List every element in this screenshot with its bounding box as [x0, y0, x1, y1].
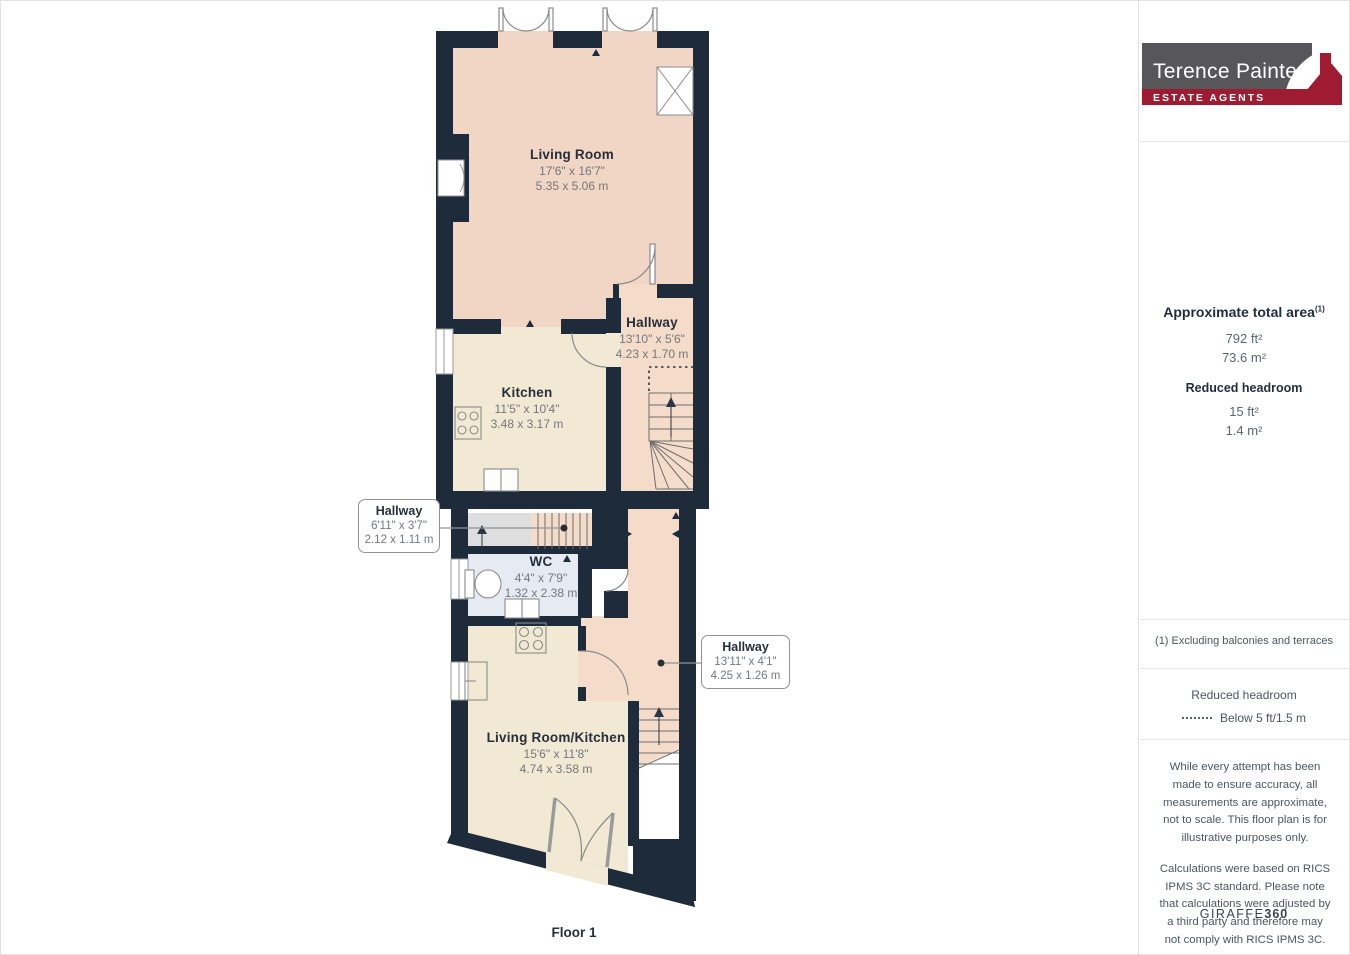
total-area-block: Approximate total area(1) 792 ft² 73.6 m…	[1139, 304, 1349, 440]
room-name: Kitchen	[447, 385, 607, 400]
total-area-imperial: 792 ft²	[1139, 329, 1349, 348]
logo-tagline-text: ESTATE AGENTS	[1153, 92, 1265, 104]
total-area-title: Approximate total area(1)	[1139, 304, 1349, 320]
reduced-headroom-metric: 1.4 m²	[1139, 421, 1349, 440]
room-dims-metric: 3.48 x 3.17 m	[447, 417, 607, 432]
room-name: WC	[471, 554, 611, 569]
legend-label: Below 5 ft/1.5 m	[1220, 711, 1306, 725]
reduced-headroom-title: Reduced headroom	[1139, 381, 1349, 395]
landing-floor	[464, 513, 531, 549]
room-dims-imperial: 4'4" x 7'9"	[471, 571, 611, 586]
area-footnote: (1) Excluding balconies and terraces	[1139, 635, 1349, 647]
legend-row: Below 5 ft/1.5 m	[1139, 711, 1349, 725]
info-sidebar: Terence Painter ESTATE AGENTS Approximat…	[1138, 1, 1349, 955]
agency-logo-graphic: Terence Painter ESTATE AGENTS	[1142, 39, 1342, 105]
room-dims-imperial: 13'10" x 5'6"	[587, 332, 717, 347]
agency-logo: Terence Painter ESTATE AGENTS	[1142, 39, 1342, 105]
giraffe360-brand: GIRAFFE360	[1139, 907, 1349, 921]
disclaimer-paragraph-2: Calculations were based on RICS IPMS 3C …	[1158, 861, 1332, 950]
door-leaf	[653, 8, 657, 31]
room-name: Hallway	[363, 504, 435, 518]
room-name: Living Room	[472, 147, 672, 162]
sidebar-divider	[1140, 739, 1349, 740]
landing-stairs-floor	[531, 513, 593, 549]
floorplan-drawing	[1, 1, 1141, 955]
logo-brand-text: Terence Painter	[1153, 60, 1305, 83]
room-label-hallway-top: Hallway 13'10" x 5'6" 4.23 x 1.70 m	[587, 315, 717, 362]
room-dims-imperial: 6'11" x 3'7"	[363, 519, 435, 533]
reduced-headroom-imperial: 15 ft²	[1139, 402, 1349, 421]
room-name: Hallway	[587, 315, 717, 330]
footnote-marker: (1)	[1315, 304, 1325, 313]
room-dims-metric: 4.23 x 1.70 m	[587, 347, 717, 362]
room-label-living-room: Living Room 17'6" x 16'7" 5.35 x 5.06 m	[472, 147, 672, 194]
door-leaf	[499, 8, 503, 31]
room-label-wc: WC 4'4" x 7'9" 1.32 x 2.38 m	[471, 554, 611, 601]
basin-icon	[505, 599, 539, 618]
disclaimer-block: While every attempt has been made to ens…	[1158, 759, 1332, 955]
reduced-headroom-legend: Reduced headroom Below 5 ft/1.5 m	[1139, 688, 1349, 725]
sink-icon	[484, 469, 518, 491]
hallway-corridor-floor	[628, 509, 679, 701]
sidebar-divider	[1140, 141, 1349, 142]
room-dims-imperial: 15'6" x 11'8"	[456, 747, 656, 762]
total-area-metric: 73.6 m²	[1139, 348, 1349, 367]
sidebar-divider	[1140, 668, 1349, 669]
room-dims-metric: 2.12 x 1.11 m	[363, 533, 435, 547]
room-dims-imperial: 11'5" x 10'4"	[447, 402, 607, 417]
callout-hallway-right: Hallway 13'11" x 4'1" 4.25 x 1.26 m	[701, 635, 790, 689]
room-dims-metric: 1.32 x 2.38 m	[471, 586, 611, 601]
room-name: Living Room/Kitchen	[456, 730, 656, 745]
door-leaf	[603, 8, 607, 31]
disclaimer-paragraph-1: While every attempt has been made to ens…	[1158, 759, 1332, 848]
sidebar-divider	[1140, 619, 1349, 620]
door-leaf	[549, 8, 553, 31]
fireplace-niche	[438, 160, 464, 196]
dotted-line-icon	[1182, 717, 1212, 719]
callout-hallway-left: Hallway 6'11" x 3'7" 2.12 x 1.11 m	[358, 499, 440, 553]
room-dims-imperial: 13'11" x 4'1"	[706, 655, 785, 669]
floorplan-page: Living Room 17'6" x 16'7" 5.35 x 5.06 m …	[0, 0, 1350, 955]
floor-label: Floor 1	[494, 925, 654, 940]
room-dims-metric: 5.35 x 5.06 m	[472, 179, 672, 194]
legend-title: Reduced headroom	[1139, 688, 1349, 702]
room-dims-metric: 4.25 x 1.26 m	[706, 669, 785, 683]
room-name: Hallway	[706, 640, 785, 654]
room-label-kitchen: Kitchen 11'5" x 10'4" 3.48 x 3.17 m	[447, 385, 607, 432]
room-dims-metric: 4.74 x 3.58 m	[456, 762, 656, 777]
room-dims-imperial: 17'6" x 16'7"	[472, 164, 672, 179]
room-label-living-kitchen: Living Room/Kitchen 15'6" x 11'8" 4.74 x…	[456, 730, 656, 777]
